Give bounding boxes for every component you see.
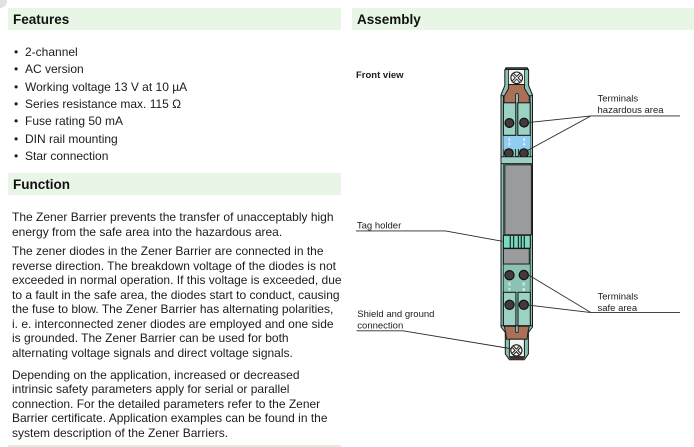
svg-text:Terminals: Terminals [598, 94, 639, 105]
svg-text:Front view: Front view [356, 70, 404, 81]
svg-text:connection: connection [357, 320, 403, 331]
svg-text:hazardous area: hazardous area [598, 105, 665, 116]
svg-text:Terminals: Terminals [598, 291, 639, 302]
svg-text:Shield and ground: Shield and ground [357, 309, 434, 320]
svg-text:Tag holder: Tag holder [357, 220, 401, 231]
